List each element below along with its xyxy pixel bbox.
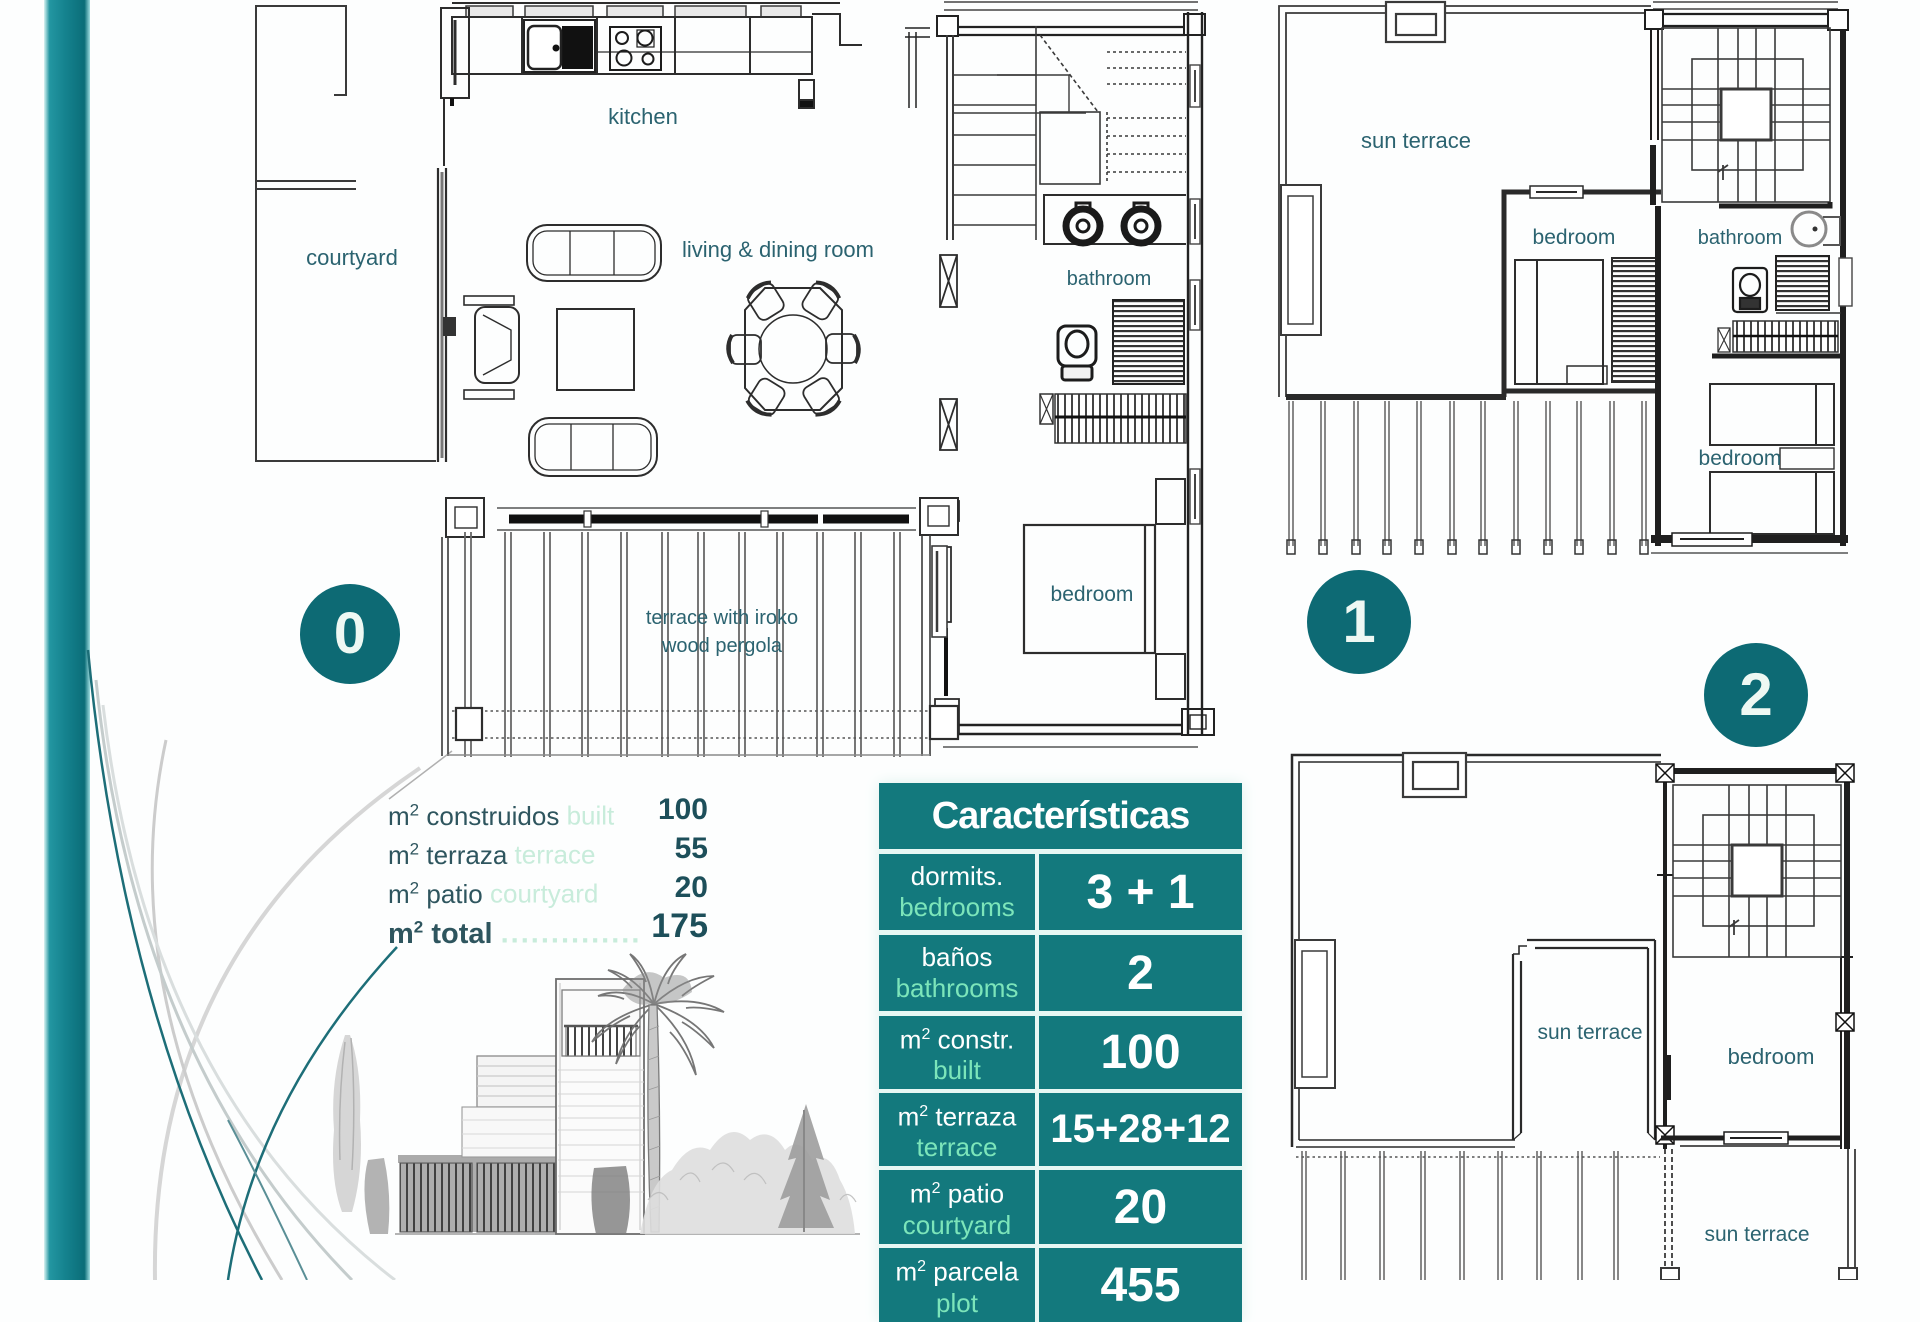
svg-text:sun terrace: sun terrace [1361,128,1471,153]
svg-text:bathroom: bathroom [1067,268,1152,290]
svg-text:living & dining room: living & dining room [682,237,874,262]
svg-text:terrace with iroko: terrace with iroko [646,607,798,629]
svg-text:bedroom: bedroom [1699,447,1782,470]
svg-text:bathroom: bathroom [1698,227,1783,249]
svg-text:sun terrace: sun terrace [1704,1223,1809,1246]
svg-text:wood pergola: wood pergola [661,635,783,657]
svg-text:bedroom: bedroom [1051,583,1134,606]
svg-text:bedroom: bedroom [1533,226,1616,249]
svg-text:bedroom: bedroom [1728,1044,1815,1069]
svg-text:sun terrace: sun terrace [1537,1021,1642,1044]
svg-text:courtyard: courtyard [306,245,398,270]
svg-text:kitchen: kitchen [608,104,678,129]
